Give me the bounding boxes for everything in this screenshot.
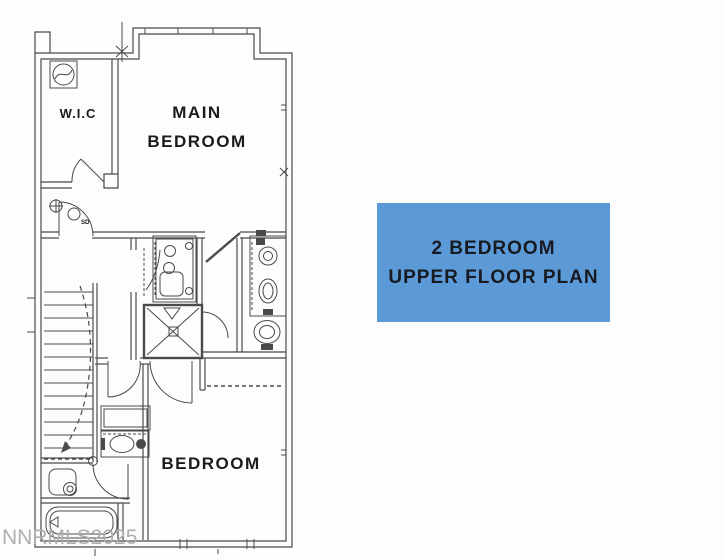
ceiling-fan-icon bbox=[50, 61, 77, 88]
small-bath-door bbox=[108, 361, 140, 397]
powder-vanity bbox=[101, 431, 149, 457]
wic-door bbox=[72, 159, 104, 182]
stair-arrow bbox=[61, 441, 71, 453]
ensuite-door bbox=[206, 233, 240, 262]
smoke-detector-label: SD bbox=[81, 220, 90, 226]
main-bedroom-label-line1: MAIN bbox=[172, 103, 221, 122]
main-bedroom-label-line2: BEDROOM bbox=[147, 132, 246, 151]
ensuite-toilet bbox=[254, 321, 280, 351]
wall-marker-icon bbox=[116, 22, 128, 62]
second-bedroom-label: BEDROOM bbox=[161, 454, 260, 473]
wic-room bbox=[41, 59, 118, 188]
powder-door bbox=[93, 464, 128, 500]
bay-window bbox=[145, 28, 247, 34]
mls-watermark: NNRMLS2025 bbox=[2, 526, 137, 550]
staircase bbox=[44, 283, 98, 466]
powder-room bbox=[41, 458, 130, 503]
wic-label: W.I.C bbox=[60, 106, 97, 121]
toilet bbox=[49, 469, 77, 496]
ensuite-bathroom bbox=[197, 230, 286, 358]
light-fixture-icon bbox=[49, 199, 63, 213]
listing-image: SD bbox=[0, 0, 725, 560]
dimension-ticks-right bbox=[280, 105, 288, 455]
dimension-ticks-left bbox=[27, 298, 35, 332]
bedroom2-wall bbox=[143, 364, 148, 540]
ensuite-vanity bbox=[250, 236, 286, 316]
closet bbox=[200, 358, 284, 390]
shower bbox=[144, 305, 228, 358]
shower-door bbox=[202, 312, 228, 338]
stair-direction-line bbox=[63, 286, 91, 449]
floor-plan-type-card: 2 BEDROOM UPPER FLOOR PLAN bbox=[377, 203, 610, 322]
card-line-1: 2 BEDROOM bbox=[431, 239, 555, 258]
double-vanity bbox=[153, 236, 196, 302]
bathroom-door bbox=[144, 248, 160, 296]
corner-notch bbox=[35, 32, 50, 53]
floor-plan-drawing: SD bbox=[0, 0, 310, 560]
bedroom-door bbox=[150, 361, 192, 403]
card-line-2: UPPER FLOOR PLAN bbox=[388, 268, 598, 287]
